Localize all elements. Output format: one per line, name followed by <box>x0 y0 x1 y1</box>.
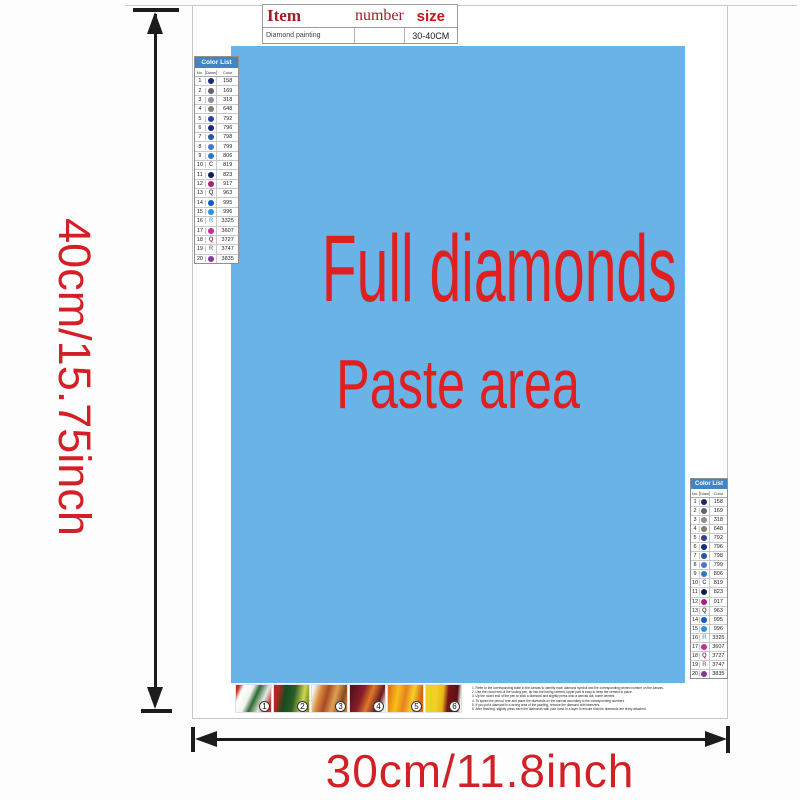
diamond-symbol-icon <box>700 525 710 533</box>
diamond-dot-icon <box>701 508 707 514</box>
dmc-color-code: 996 <box>710 626 727 632</box>
diamond-symbol-icon <box>700 552 710 560</box>
diamond-dot-icon <box>208 228 214 234</box>
diamond-symbol-icon <box>206 96 218 104</box>
diamond-symbol-icon <box>700 670 710 678</box>
diamond-symbol-icon <box>206 198 218 206</box>
color-row-number: 5 <box>691 535 700 541</box>
dmc-color-code: 3747 <box>217 246 238 252</box>
diamond-dot-icon <box>701 589 707 595</box>
dmc-color-code: 3835 <box>217 256 238 262</box>
color-row: 12917 <box>195 179 238 188</box>
diamond-letter-symbol: R <box>209 246 213 252</box>
diamond-symbol-icon: R <box>206 217 218 225</box>
color-row-number: 9 <box>691 571 700 577</box>
diamond-letter-symbol: Q <box>702 608 707 614</box>
horizontal-arrow-right-cap <box>726 726 730 753</box>
instructions-text: 1. Refer to the corresponding table in t… <box>472 686 682 712</box>
diamond-dot-icon <box>208 256 214 262</box>
diamond-dot-icon <box>208 209 214 215</box>
color-row-number: 18 <box>691 653 700 659</box>
dmc-color-code: 995 <box>710 617 727 623</box>
step-number-badge: 4 <box>373 701 384 712</box>
diamond-dot-icon <box>701 562 707 568</box>
diamond-symbol-icon <box>206 142 218 150</box>
dmc-color-code: 648 <box>710 526 727 532</box>
diamond-symbol-icon <box>700 625 710 633</box>
diamond-dot-icon <box>701 544 707 550</box>
diamond-symbol-icon: Q <box>700 607 710 615</box>
color-row: 2169 <box>195 85 238 94</box>
color-row: 15996 <box>691 624 727 633</box>
color-row: 4648 <box>195 104 238 113</box>
dmc-color-code: 796 <box>217 125 238 131</box>
canvas-sheet: Item number size Diamond painting 30-40C… <box>192 5 728 719</box>
diamond-symbol-icon <box>700 516 710 524</box>
dmc-color-code: 3835 <box>710 671 727 677</box>
dmc-color-code: 819 <box>217 162 238 168</box>
diamond-dot-icon <box>701 571 707 577</box>
dmc-color-code: 318 <box>710 517 727 523</box>
diamond-symbol-icon <box>700 570 710 578</box>
color-row: 173607 <box>195 226 238 235</box>
diamond-symbol-icon: Q <box>206 189 218 197</box>
color-row-number: 14 <box>195 200 206 206</box>
step-image: 3 <box>311 684 348 713</box>
diamond-dot-icon <box>208 181 214 187</box>
step-image: 5 <box>387 684 424 713</box>
color-row: 16R3325 <box>691 633 727 642</box>
color-row: 7798 <box>691 551 727 560</box>
color-row-number: 15 <box>691 626 700 632</box>
diamond-dot-icon <box>208 172 214 178</box>
step-image: 1 <box>235 684 272 713</box>
diamond-letter-symbol: R <box>702 635 706 641</box>
col-no-label: No. <box>691 491 700 496</box>
diamond-symbol-icon <box>700 507 710 515</box>
diamond-dot-icon <box>208 200 214 206</box>
dmc-color-code: 963 <box>217 190 238 196</box>
diamond-dot-icon <box>701 671 707 677</box>
dmc-color-code: 3607 <box>217 228 238 234</box>
color-row: 203835 <box>195 254 238 263</box>
item-header-label: Item <box>263 6 354 26</box>
diamond-symbol-icon: Q <box>206 236 218 244</box>
full-diamonds-text: Full diamonds <box>322 222 594 317</box>
color-row: 8799 <box>195 141 238 150</box>
color-row: 18Q3727 <box>691 651 727 660</box>
diamond-symbol-icon <box>206 227 218 235</box>
diamond-letter-symbol: C <box>209 162 213 168</box>
diamond-symbol-icon <box>206 114 218 122</box>
diamond-dot-icon <box>208 78 214 84</box>
color-row: 8799 <box>691 560 727 569</box>
color-row: 14995 <box>691 615 727 624</box>
color-row: 10C819 <box>195 160 238 169</box>
color-row-number: 7 <box>195 134 206 140</box>
diamond-dot-icon <box>701 553 707 559</box>
vertical-arrow-line <box>154 14 157 692</box>
item-value: Diamond painting <box>263 32 354 39</box>
step-number-badge: 1 <box>259 701 270 712</box>
color-row-number: 5 <box>195 116 206 122</box>
item-table-row: Diamond painting 30-40CM <box>263 28 457 43</box>
diamond-symbol-icon <box>700 616 710 624</box>
color-row: 18Q3727 <box>195 235 238 244</box>
color-row-number: 17 <box>691 644 700 650</box>
color-row: 19R3747 <box>195 244 238 253</box>
col-diamond-label: Diamond <box>700 491 710 496</box>
color-row: 15996 <box>195 207 238 216</box>
diamond-dot-icon <box>701 517 707 523</box>
diamond-dot-icon <box>208 106 214 112</box>
color-row: 203835 <box>691 669 727 678</box>
color-row: 1158 <box>195 77 238 85</box>
color-row: 3318 <box>195 95 238 104</box>
color-row-number: 20 <box>691 671 700 677</box>
width-dimension-label: 30cm/11.8inch <box>270 744 690 798</box>
diamond-letter-symbol: C <box>702 580 706 586</box>
number-value <box>354 28 404 43</box>
diamond-dot-icon <box>208 88 214 94</box>
dmc-color-code: 823 <box>217 172 238 178</box>
diamond-dot-icon <box>701 526 707 532</box>
dmc-color-code: 318 <box>217 97 238 103</box>
color-row: 19R3747 <box>691 660 727 669</box>
diamond-symbol-icon <box>700 498 710 506</box>
color-row-number: 13 <box>195 190 206 196</box>
color-row: 11823 <box>195 169 238 178</box>
step-number-badge: 6 <box>449 701 460 712</box>
color-list-column-headers: No. Diamond Color <box>195 68 238 77</box>
diamond-letter-symbol: Q <box>209 237 214 243</box>
size-header-label: size <box>405 8 457 25</box>
color-row: 11823 <box>691 587 727 596</box>
color-row: 1158 <box>691 498 727 506</box>
paste-area: Full diamonds Paste area <box>231 46 685 683</box>
col-color-label: Color <box>217 70 238 75</box>
diamond-dot-icon <box>208 116 214 122</box>
dmc-color-code: 3727 <box>217 237 238 243</box>
dmc-color-code: 3607 <box>710 644 727 650</box>
arrow-right-icon <box>705 731 727 747</box>
diamond-symbol-icon <box>206 180 218 188</box>
diamond-symbol-icon <box>700 534 710 542</box>
col-color-label: Color <box>710 491 727 496</box>
diamond-symbol-icon: R <box>700 661 710 669</box>
dmc-color-code: 917 <box>710 599 727 605</box>
arrow-down-icon <box>147 687 163 709</box>
color-list-rows: 11582169331846485792679677988799980610C8… <box>195 77 238 263</box>
instruction-line: 6. After finishing, slightly press each … <box>472 707 682 711</box>
diamond-letter-symbol: Q <box>702 653 707 659</box>
color-row: 173607 <box>691 642 727 651</box>
color-row-number: 8 <box>195 144 206 150</box>
number-header-label: number <box>354 7 404 25</box>
diamond-dot-icon <box>208 97 214 103</box>
color-row-number: 12 <box>195 181 206 187</box>
diamond-letter-symbol: Q <box>209 190 214 196</box>
dmc-color-code: 996 <box>217 209 238 215</box>
diamond-dot-icon <box>208 144 214 150</box>
color-row-number: 9 <box>195 153 206 159</box>
color-list-rows: 11582169331846485792679677988799980610C8… <box>691 498 727 678</box>
dmc-color-code: 792 <box>710 535 727 541</box>
color-row: 16R3325 <box>195 216 238 225</box>
color-row-number: 7 <box>691 553 700 559</box>
diamond-dot-icon <box>208 125 214 131</box>
color-row: 6796 <box>691 542 727 551</box>
diamond-dot-icon <box>701 535 707 541</box>
color-row: 9806 <box>195 151 238 160</box>
col-diamond-label: Diamond <box>206 70 218 75</box>
dmc-color-code: 3747 <box>710 662 727 668</box>
dmc-color-code: 917 <box>217 181 238 187</box>
color-row-number: 1 <box>691 499 700 505</box>
step-image: 4 <box>349 684 386 713</box>
color-row-number: 4 <box>195 106 206 112</box>
dmc-color-code: 792 <box>217 116 238 122</box>
color-row: 14995 <box>195 197 238 206</box>
dmc-color-code: 995 <box>217 200 238 206</box>
dmc-color-code: 158 <box>710 499 727 505</box>
color-row-number: 6 <box>195 125 206 131</box>
diamond-symbol-icon <box>206 170 218 178</box>
color-row-number: 19 <box>691 662 700 668</box>
diamond-symbol-icon <box>206 86 218 94</box>
horizontal-arrow-line <box>200 738 710 741</box>
vertical-arrow-bottom-cap <box>141 709 172 713</box>
step-number-badge: 5 <box>411 701 422 712</box>
color-row-number: 6 <box>691 544 700 550</box>
color-row-number: 2 <box>195 88 206 94</box>
color-row-number: 13 <box>691 608 700 614</box>
diamond-symbol-icon <box>206 152 218 160</box>
dmc-color-code: 806 <box>217 153 238 159</box>
diamond-symbol-icon <box>700 588 710 596</box>
color-row: 5792 <box>691 533 727 542</box>
color-row-number: 10 <box>691 580 700 586</box>
diamond-letter-symbol: R <box>209 218 213 224</box>
paste-area-text: Paste area <box>295 349 622 419</box>
color-list-left: Color List No. Diamond Color 11582169331… <box>194 56 239 264</box>
color-row-number: 14 <box>691 617 700 623</box>
color-row-number: 19 <box>195 246 206 252</box>
size-value: 30-40CM <box>405 31 457 41</box>
color-row-number: 4 <box>691 526 700 532</box>
dmc-color-code: 798 <box>710 553 727 559</box>
diamond-symbol-icon: C <box>700 579 710 587</box>
diamond-letter-symbol: R <box>702 662 706 668</box>
color-row-number: 10 <box>195 162 206 168</box>
diamond-symbol-icon <box>700 543 710 551</box>
diamond-symbol-icon <box>206 77 218 85</box>
dmc-color-code: 169 <box>217 88 238 94</box>
color-row: 7798 <box>195 132 238 141</box>
diamond-symbol-icon <box>206 208 218 216</box>
color-row-number: 20 <box>195 256 206 262</box>
color-row: 10C819 <box>691 578 727 587</box>
dmc-color-code: 798 <box>217 134 238 140</box>
color-row-number: 3 <box>691 517 700 523</box>
diamond-symbol-icon <box>700 598 710 606</box>
color-row-number: 3 <box>195 97 206 103</box>
color-row-number: 11 <box>691 589 700 595</box>
color-row: 6796 <box>195 123 238 132</box>
diamond-symbol-icon <box>206 133 218 141</box>
color-row: 12917 <box>691 597 727 606</box>
color-row-number: 16 <box>691 635 700 641</box>
step-number-badge: 2 <box>297 701 308 712</box>
diamond-dot-icon <box>701 644 707 650</box>
dmc-color-code: 3325 <box>217 218 238 224</box>
dmc-color-code: 648 <box>217 106 238 112</box>
color-row: 2169 <box>691 506 727 515</box>
color-row-number: 2 <box>691 508 700 514</box>
color-row-number: 15 <box>195 209 206 215</box>
color-row-number: 17 <box>195 228 206 234</box>
color-row: 9806 <box>691 569 727 578</box>
color-row-number: 11 <box>195 172 206 178</box>
diamond-dot-icon <box>208 153 214 159</box>
diamond-dot-icon <box>701 626 707 632</box>
diamond-dot-icon <box>208 134 214 140</box>
diamond-symbol-icon: R <box>700 634 710 642</box>
item-table-header: Item number size <box>263 5 457 28</box>
diamond-dot-icon <box>701 499 707 505</box>
diamond-symbol-icon <box>206 105 218 113</box>
diamond-symbol-icon: C <box>206 161 218 169</box>
col-no-label: No. <box>195 70 206 75</box>
dmc-color-code: 3727 <box>710 653 727 659</box>
color-row-number: 12 <box>691 599 700 605</box>
color-list-column-headers: No. Diamond Color <box>691 489 727 498</box>
dmc-color-code: 819 <box>710 580 727 586</box>
dmc-color-code: 799 <box>710 562 727 568</box>
color-row: 13Q963 <box>691 606 727 615</box>
dmc-color-code: 799 <box>217 144 238 150</box>
color-row-number: 8 <box>691 562 700 568</box>
diamond-dot-icon <box>701 599 707 605</box>
diamond-dot-icon <box>701 617 707 623</box>
color-row: 5792 <box>195 113 238 122</box>
step-image: 6 <box>425 684 462 713</box>
diamond-symbol-icon <box>700 561 710 569</box>
diamond-symbol-icon <box>206 124 218 132</box>
dmc-color-code: 963 <box>710 608 727 614</box>
color-row: 13Q963 <box>195 188 238 197</box>
dmc-color-code: 806 <box>710 571 727 577</box>
diamond-symbol-icon: R <box>206 245 218 253</box>
dmc-color-code: 3325 <box>710 635 727 641</box>
color-row: 3318 <box>691 515 727 524</box>
color-row: 4648 <box>691 524 727 533</box>
step-image: 2 <box>273 684 310 713</box>
diamond-symbol-icon: Q <box>700 652 710 660</box>
dmc-color-code: 823 <box>710 589 727 595</box>
color-list-title: Color List <box>195 57 238 68</box>
color-row-number: 1 <box>195 78 206 84</box>
step-number-badge: 3 <box>335 701 346 712</box>
dmc-color-code: 158 <box>217 78 238 84</box>
diamond-symbol-icon <box>206 255 218 263</box>
dmc-color-code: 796 <box>710 544 727 550</box>
dmc-color-code: 169 <box>710 508 727 514</box>
color-row-number: 16 <box>195 218 206 224</box>
color-list-title: Color List <box>691 479 727 489</box>
color-list-right: Color List No. Diamond Color 11582169331… <box>690 478 728 679</box>
color-row-number: 18 <box>195 237 206 243</box>
height-dimension-label: 40cm/15.75inch <box>50 177 100 577</box>
step-thumbnails: 123456 <box>235 684 463 714</box>
diamond-symbol-icon <box>700 643 710 651</box>
item-table: Item number size Diamond painting 30-40C… <box>262 4 458 44</box>
